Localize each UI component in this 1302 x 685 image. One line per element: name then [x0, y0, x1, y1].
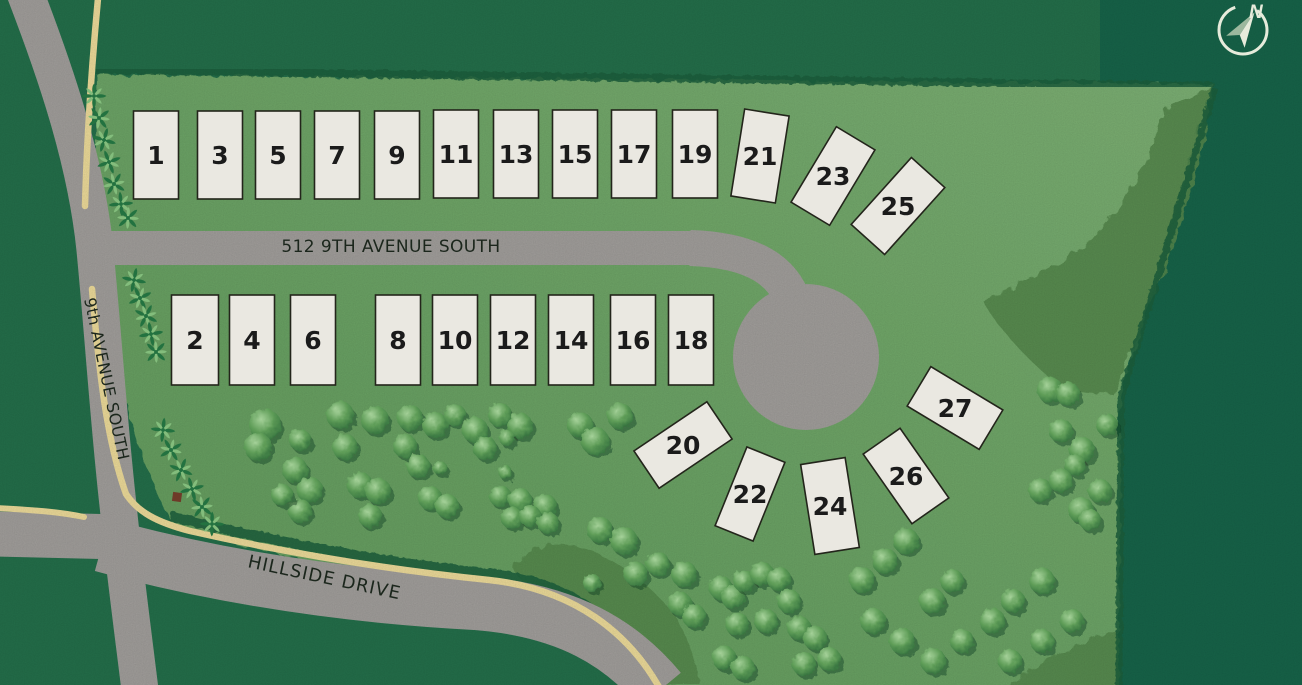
lot-number: 5: [269, 141, 286, 170]
lot-3[interactable]: 3: [198, 111, 243, 199]
tree: [1029, 568, 1055, 594]
lot-15[interactable]: 15: [553, 110, 598, 198]
tree: [1049, 469, 1073, 493]
tree: [244, 433, 272, 461]
lot-number: 23: [816, 162, 851, 191]
tree: [583, 574, 601, 592]
lot-14[interactable]: 14: [549, 295, 594, 385]
site-plan-canvas: 512 9TH AVENUE SOUTH 9th AVENUE SOUTH HI…: [0, 0, 1302, 685]
lot-6[interactable]: 6: [291, 295, 336, 385]
tree: [940, 569, 964, 593]
lot-number: 4: [243, 326, 260, 355]
tree: [950, 629, 974, 653]
lot-16[interactable]: 16: [611, 295, 656, 385]
tree: [1001, 589, 1025, 613]
tree: [893, 528, 919, 554]
road-west-spur: [0, 534, 122, 537]
lot-number: 11: [439, 140, 474, 169]
lot-number: 7: [328, 141, 345, 170]
tree: [499, 430, 515, 446]
tree: [361, 406, 389, 434]
tree: [860, 608, 886, 634]
tree: [624, 562, 648, 586]
lot-number: 19: [678, 140, 713, 169]
tree: [792, 652, 816, 676]
tree: [358, 504, 382, 528]
tree: [1088, 479, 1112, 503]
street-label-512-9th-avenue-south: 512 9TH AVENUE SOUTH: [281, 237, 500, 257]
lot-number: 12: [496, 326, 531, 355]
tree: [271, 484, 293, 506]
lot-number: 8: [389, 326, 406, 355]
lot-17[interactable]: 17: [612, 110, 657, 198]
tree: [610, 527, 638, 555]
tree: [537, 512, 559, 534]
tree: [725, 612, 749, 636]
lot-number: 16: [616, 326, 651, 355]
lot-number: 24: [813, 492, 848, 521]
lot-2[interactable]: 2: [172, 295, 219, 385]
lot-number: 20: [666, 431, 701, 460]
lot-12[interactable]: 12: [491, 295, 536, 385]
lot-13[interactable]: 13: [494, 110, 539, 198]
lot-number: 22: [733, 480, 768, 509]
lot-number: 18: [674, 326, 709, 355]
lot-number: 6: [304, 326, 321, 355]
lot-number: 27: [938, 394, 973, 423]
tree: [1028, 478, 1052, 502]
tree: [433, 461, 447, 475]
lot-number: 13: [499, 140, 534, 169]
lot-5[interactable]: 5: [256, 111, 301, 199]
tree: [473, 436, 497, 460]
lot-11[interactable]: 11: [434, 110, 479, 198]
tree: [1079, 509, 1101, 531]
tree: [498, 465, 512, 479]
tree: [406, 454, 430, 478]
tree: [754, 609, 778, 633]
tree: [767, 567, 791, 591]
tree: [777, 589, 801, 613]
tree: [682, 604, 706, 628]
tree: [731, 656, 755, 680]
lot-18[interactable]: 18: [669, 295, 714, 385]
site-plan-map: 512 9TH AVENUE SOUTH 9th AVENUE SOUTH HI…: [0, 0, 1302, 685]
lot-number: 14: [554, 326, 589, 355]
tree: [332, 434, 358, 460]
lot-10[interactable]: 10: [433, 295, 478, 385]
lot-number: 3: [211, 141, 228, 170]
lot-number: 1: [147, 141, 164, 170]
tree: [444, 404, 466, 426]
lot-number: 9: [388, 141, 405, 170]
tree: [920, 648, 946, 674]
tree: [1049, 419, 1073, 443]
tree: [587, 517, 613, 543]
lot-8[interactable]: 8: [376, 295, 421, 385]
tree: [817, 647, 841, 671]
lot-7[interactable]: 7: [315, 111, 360, 199]
lot-number: 10: [438, 326, 473, 355]
tree: [397, 405, 423, 431]
tree: [365, 478, 391, 504]
tree: [393, 434, 417, 458]
tree: [919, 588, 945, 614]
lot-number: 25: [881, 192, 916, 221]
shed-marker: [172, 492, 182, 502]
compass-n-label: N: [1249, 2, 1264, 23]
tree: [581, 427, 609, 455]
tree: [489, 485, 511, 507]
lot-number: 17: [617, 140, 652, 169]
tree: [289, 429, 311, 451]
tree: [849, 567, 875, 593]
tree: [872, 548, 898, 574]
lot-number: 21: [743, 142, 778, 171]
tree: [646, 552, 670, 576]
tree: [998, 649, 1022, 673]
tree: [607, 403, 633, 429]
tree: [1056, 382, 1080, 406]
tree: [979, 608, 1005, 634]
tree: [1060, 609, 1084, 633]
tree: [326, 401, 354, 429]
lot-number: 26: [889, 462, 924, 491]
tree: [435, 494, 459, 518]
tree: [803, 626, 827, 650]
tree: [671, 561, 697, 587]
tree: [889, 628, 915, 654]
lot-4[interactable]: 4: [230, 295, 275, 385]
lot-9[interactable]: 9: [375, 111, 420, 199]
lot-number: 2: [186, 326, 203, 355]
lot-number: 15: [558, 140, 593, 169]
lot-19[interactable]: 19: [673, 110, 718, 198]
culdesac-bulb: [733, 284, 879, 430]
tree: [1030, 629, 1054, 653]
lot-1[interactable]: 1: [134, 111, 179, 199]
tree: [1096, 414, 1118, 436]
